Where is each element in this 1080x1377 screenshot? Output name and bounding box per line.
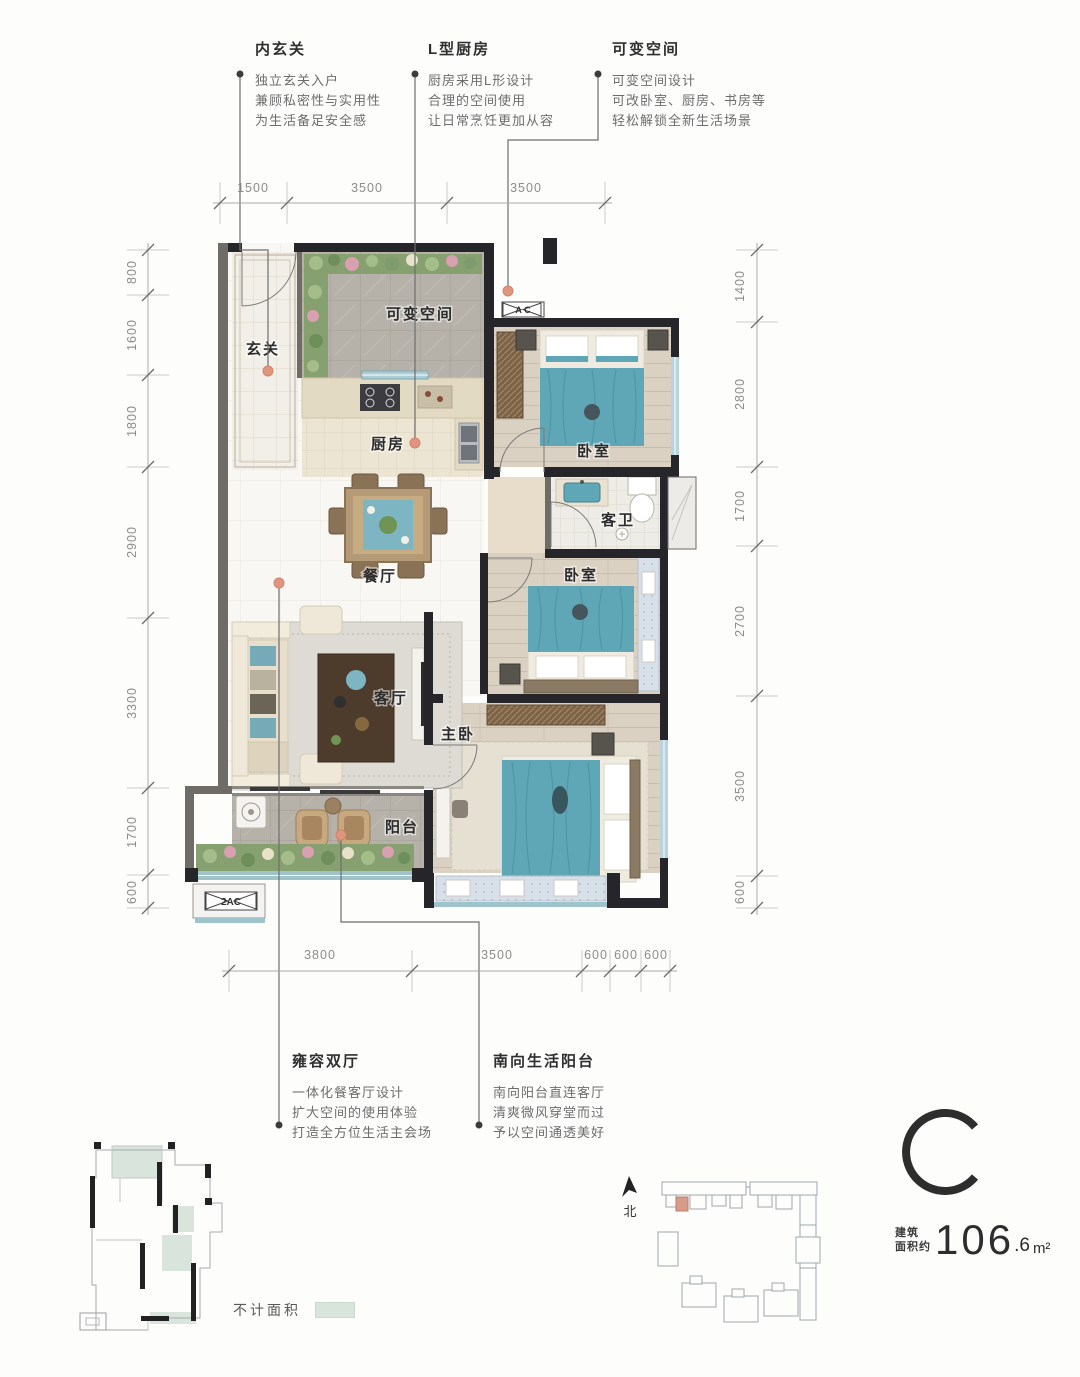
room-label-master: 主卧 <box>441 725 475 743</box>
callout-flex: 可变空间 可变空间设计 可改卧室、厨房、书房等 轻松解锁全新生活场景 <box>612 38 832 131</box>
callout-line: 南向阳台直连客厅 <box>493 1083 713 1103</box>
callout-south-balcony: 南向生活阳台 南向阳台直连客厅 清爽微风穿堂而过 予以空间通透美好 <box>493 1050 713 1143</box>
room-label-bedroom-top: 卧室 <box>577 442 611 460</box>
legend-excluded-area: 不计面积 <box>233 1300 355 1320</box>
flower-bed <box>196 844 414 871</box>
svg-text:1700: 1700 <box>125 816 139 848</box>
room-label-flex: 可变空间 <box>386 305 454 323</box>
corridor-floor <box>488 477 545 553</box>
mini-plan-ac <box>80 1313 106 1330</box>
svg-text:600: 600 <box>644 948 668 962</box>
ac-unit-bottom: 2AC <box>193 884 265 923</box>
callout-line: 清爽微风穿堂而过 <box>493 1103 713 1123</box>
svg-text:2900: 2900 <box>125 526 139 558</box>
sliding-door <box>232 786 424 796</box>
area-value: 106 <box>935 1221 1014 1259</box>
sink-icon <box>459 423 479 463</box>
svg-text:3300: 3300 <box>125 687 139 719</box>
dim-top: 1500 3500 3500 <box>213 181 612 224</box>
mini-floor-plan <box>80 1142 222 1330</box>
svg-text:1600: 1600 <box>125 319 139 351</box>
room-label-bedroom-mid: 卧室 <box>564 566 598 584</box>
stove-icon <box>360 384 400 411</box>
svg-text:1500: 1500 <box>237 181 269 195</box>
callout-double-hall: 雍容双厅 一体化餐客厅设计 扩大空间的使用体验 打造全方位生活主会场 <box>292 1050 512 1143</box>
area-label: 建筑 面积约 <box>895 1226 931 1259</box>
ac-bottom-label: 2AC <box>221 897 241 908</box>
mini-plan-excluded-areas <box>112 1146 196 1324</box>
dim-right: 1400 2800 1700 2700 3500 600 <box>733 243 778 915</box>
area-label-line2: 面积约 <box>895 1240 931 1254</box>
svg-text:600: 600 <box>733 880 747 904</box>
callout-line: 予以空间通透美好 <box>493 1123 713 1143</box>
callout-line: 轻松解锁全新生活场景 <box>612 111 832 131</box>
dining-table-icon <box>329 474 447 578</box>
room-label-dining: 餐厅 <box>363 567 397 585</box>
legend-label: 不计面积 <box>233 1300 301 1320</box>
callout-title: 可变空间 <box>612 38 832 59</box>
room-kitchen <box>302 378 483 477</box>
callout-line: 一体化餐客厅设计 <box>292 1083 512 1103</box>
svg-text:600: 600 <box>125 880 139 904</box>
washer-icon <box>236 796 266 828</box>
room-label-balcony: 阳台 <box>385 818 419 836</box>
ac-top-label: A C <box>515 305 531 315</box>
callout-line: 可改卧室、厨房、书房等 <box>612 91 832 111</box>
svg-text:600: 600 <box>584 948 608 962</box>
svg-text:2700: 2700 <box>733 605 747 637</box>
svg-text:1700: 1700 <box>733 490 747 522</box>
area-decimal: .6 <box>1014 1235 1030 1259</box>
svg-text:1800: 1800 <box>125 405 139 437</box>
site-highlight-unit <box>676 1197 688 1211</box>
sofa-icon <box>232 622 290 790</box>
legend-swatch <box>315 1302 355 1318</box>
svg-text:2800: 2800 <box>733 378 747 410</box>
dim-left: 800 1600 1800 2900 3300 1700 600 <box>125 243 169 915</box>
armchair-icon <box>300 606 342 634</box>
ac-unit-top: A C <box>502 302 544 317</box>
room-label-kitchen: 厨房 <box>371 435 405 453</box>
unit-letter <box>906 1113 975 1191</box>
callout-line: 打造全方位生活主会场 <box>292 1123 512 1143</box>
floorplan-scene: A C 2AC 玄关 可变空间 厨房 卧室 客卫 卧室 餐厅 客厅 主卧 阳台 <box>0 0 1080 1377</box>
callout-line: 扩大空间的使用体验 <box>292 1103 512 1123</box>
bath-sink-icon <box>556 479 608 506</box>
dresser-icon <box>487 705 605 725</box>
svg-text:3500: 3500 <box>351 181 383 195</box>
svg-text:3500: 3500 <box>481 948 513 962</box>
tv-console-icon <box>412 648 425 740</box>
svg-text:600: 600 <box>614 948 638 962</box>
north-label: 北 <box>623 1204 636 1219</box>
floorplan-page: A C 2AC 玄关 可变空间 厨房 卧室 客卫 卧室 餐厅 客厅 主卧 阳台 <box>0 0 1080 1377</box>
area-label-line1: 建筑 <box>895 1226 931 1240</box>
bay-window-seat <box>434 876 608 907</box>
room-label-entry: 玄关 <box>246 340 280 358</box>
site-plan: 北 <box>622 1176 820 1322</box>
callout-title: 南向生活阳台 <box>493 1050 713 1071</box>
svg-text:800: 800 <box>125 260 139 284</box>
callout-title: 雍容双厅 <box>292 1050 512 1071</box>
north-arrow-icon: 北 <box>622 1176 637 1219</box>
room-label-bath: 客卫 <box>600 511 635 529</box>
counter-prep-area <box>418 386 452 408</box>
coffee-table-icon <box>318 654 394 762</box>
svg-text:1400: 1400 <box>733 270 747 302</box>
room-label-living: 客厅 <box>373 689 408 707</box>
callout-line: 可变空间设计 <box>612 71 832 91</box>
dim-bottom: 3800 3500 600 600 600 <box>222 948 677 992</box>
area-unit: m² <box>1033 1240 1051 1259</box>
area-info: 建筑 面积约 106 .6 m² <box>895 1221 1050 1259</box>
svg-text:3800: 3800 <box>304 948 336 962</box>
svg-text:3500: 3500 <box>733 770 747 802</box>
floor-plan: A C 2AC 玄关 可变空间 厨房 卧室 客卫 卧室 餐厅 客厅 主卧 阳台 <box>185 238 696 923</box>
svg-text:3500: 3500 <box>510 181 542 195</box>
